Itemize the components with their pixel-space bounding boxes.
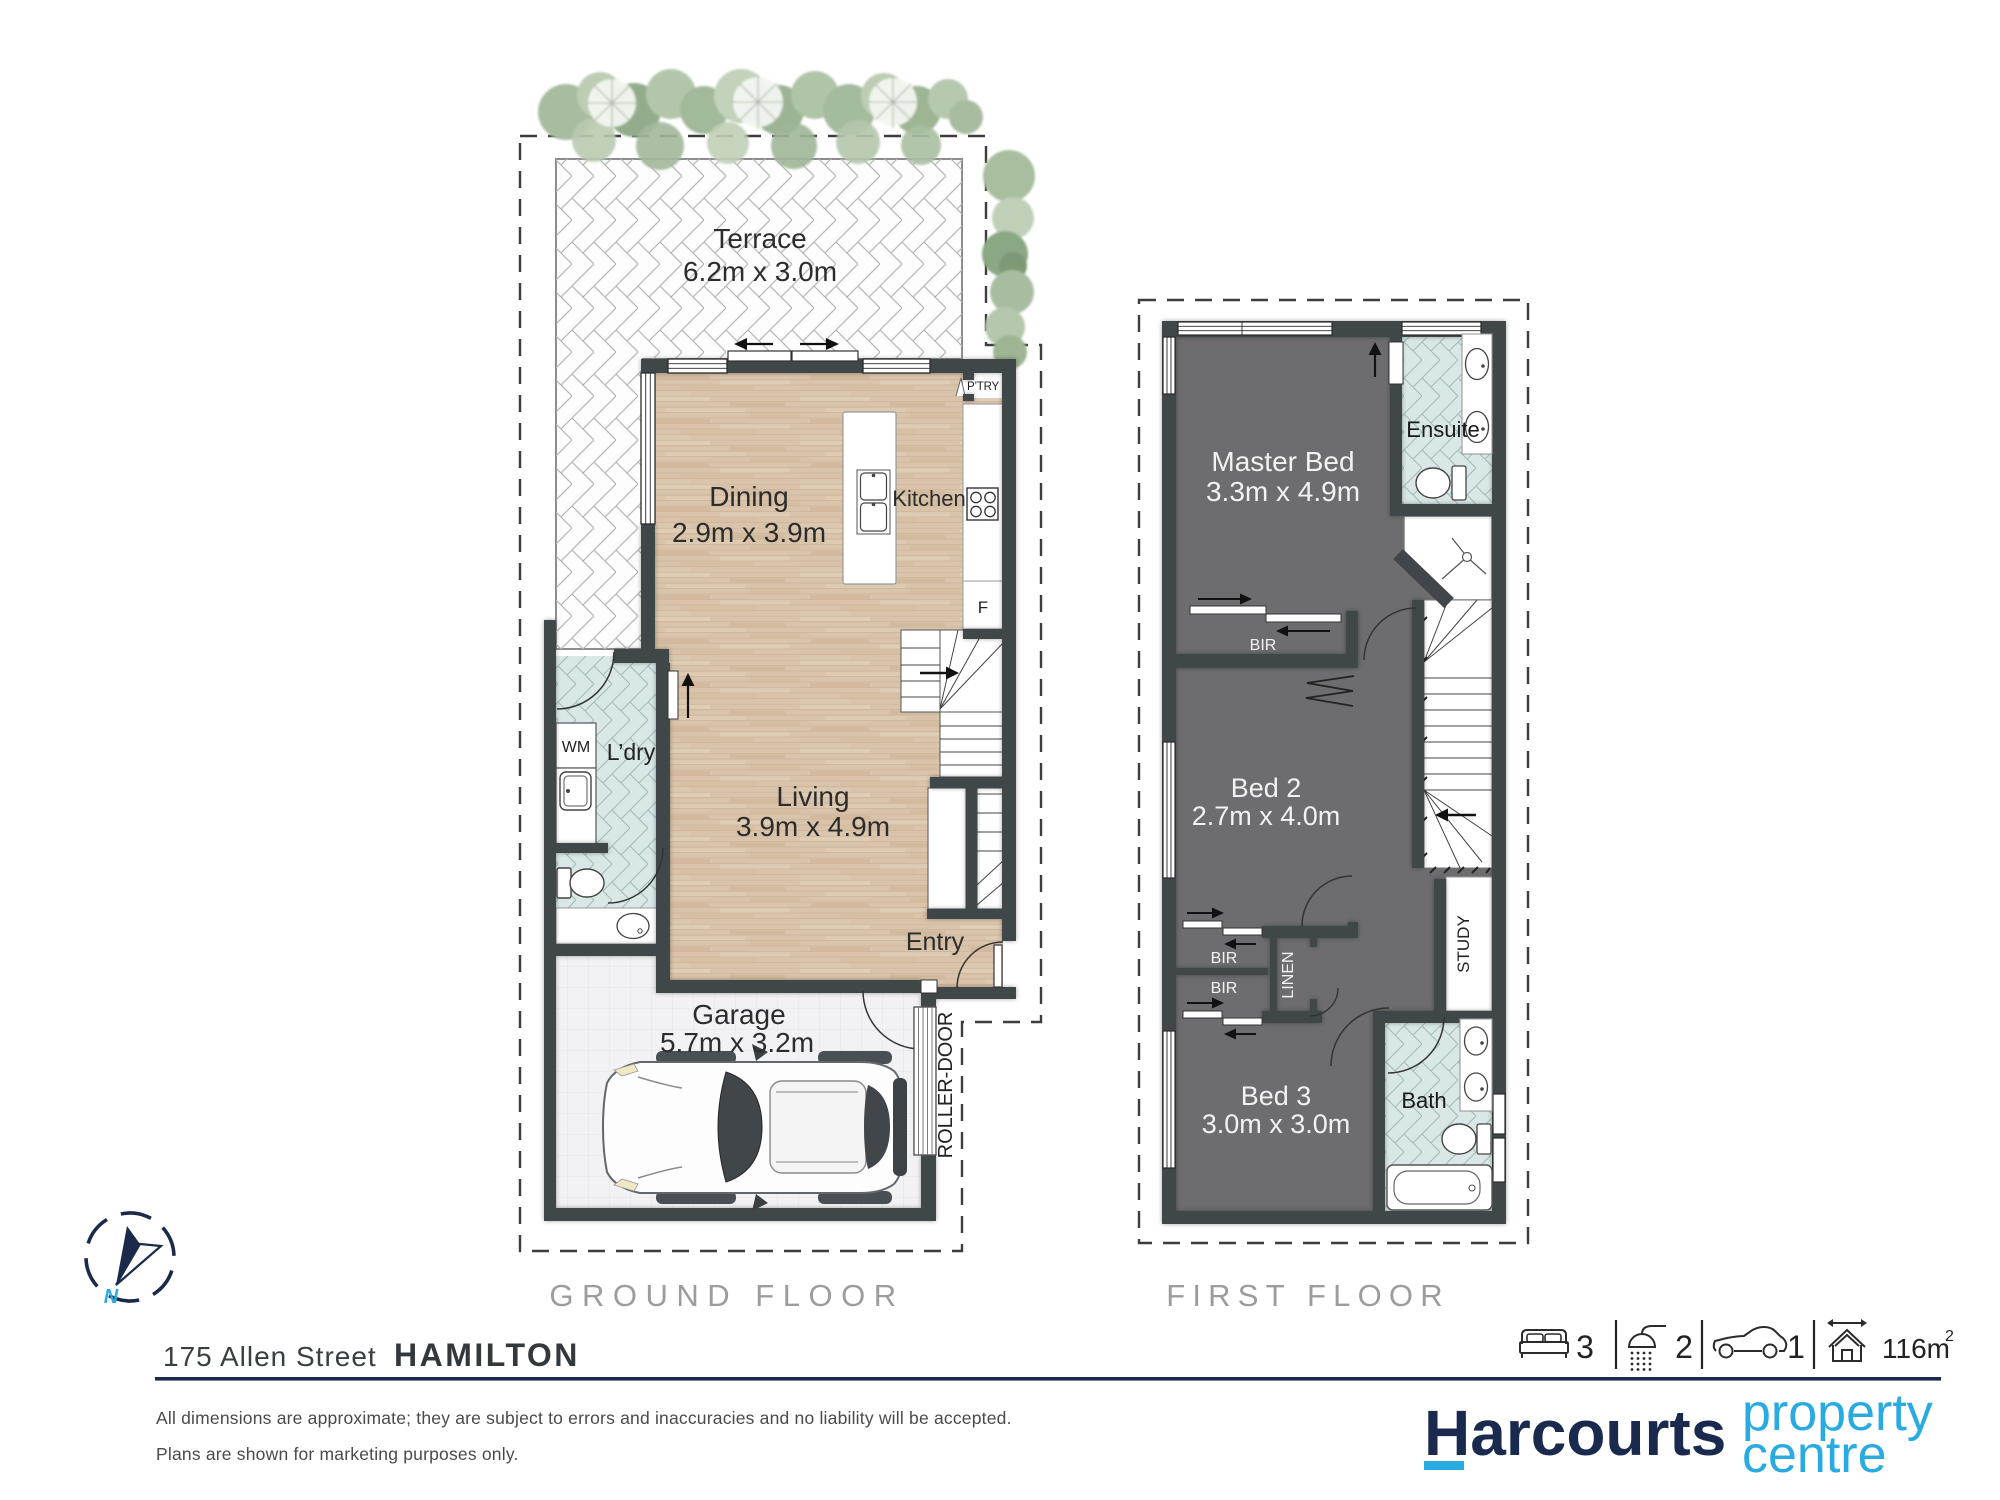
svg-text:1: 1 bbox=[1787, 1329, 1805, 1365]
svg-text:F: F bbox=[978, 598, 988, 617]
svg-text:6.2m x 3.0m: 6.2m x 3.0m bbox=[683, 256, 837, 287]
svg-text:BIR: BIR bbox=[1211, 980, 1238, 997]
svg-text:175 Allen Street: 175 Allen Street bbox=[163, 1341, 377, 1372]
svg-text:P’TRY: P’TRY bbox=[967, 381, 1000, 393]
svg-text:HAMILTON: HAMILTON bbox=[394, 1337, 580, 1373]
svg-text:5.7m x 3.2m: 5.7m x 3.2m bbox=[660, 1027, 814, 1058]
svg-text:Plans are shown for marketing: Plans are shown for marketing purposes o… bbox=[156, 1444, 519, 1464]
svg-text:Kitchen: Kitchen bbox=[892, 486, 965, 511]
svg-text:3.0m x 3.0m: 3.0m x 3.0m bbox=[1202, 1109, 1351, 1139]
svg-text:BIR: BIR bbox=[1250, 637, 1277, 654]
svg-text:2.7m x 4.0m: 2.7m x 4.0m bbox=[1192, 801, 1341, 831]
svg-text:3.9m x 4.9m: 3.9m x 4.9m bbox=[736, 811, 890, 842]
svg-text:Master Bed: Master Bed bbox=[1211, 446, 1354, 477]
svg-text:Bed 3: Bed 3 bbox=[1241, 1081, 1312, 1111]
svg-text:Garage: Garage bbox=[692, 999, 785, 1030]
svg-text:Bath: Bath bbox=[1401, 1088, 1446, 1113]
svg-text:STUDY: STUDY bbox=[1454, 915, 1473, 973]
svg-text:N: N bbox=[104, 1286, 119, 1308]
svg-text:2: 2 bbox=[1675, 1329, 1693, 1365]
svg-text:WM: WM bbox=[562, 739, 590, 756]
svg-text:BIR: BIR bbox=[1211, 950, 1238, 967]
svg-text:centre: centre bbox=[1742, 1426, 1887, 1484]
svg-text:2.9m x 3.9m: 2.9m x 3.9m bbox=[672, 517, 826, 548]
svg-text:Dining: Dining bbox=[709, 481, 788, 512]
svg-text:3.3m x 4.9m: 3.3m x 4.9m bbox=[1206, 476, 1360, 507]
svg-text:LINEN: LINEN bbox=[1280, 951, 1297, 998]
svg-text:ROLLER-DOOR: ROLLER-DOOR bbox=[935, 1012, 957, 1159]
svg-text:116m: 116m bbox=[1882, 1333, 1950, 1364]
svg-text:Bed 2: Bed 2 bbox=[1231, 773, 1302, 803]
svg-text:Harcourts: Harcourts bbox=[1424, 1397, 1726, 1469]
svg-text:Terrace: Terrace bbox=[713, 223, 806, 254]
svg-text:3: 3 bbox=[1576, 1329, 1594, 1365]
svg-text:GROUND FLOOR: GROUND FLOOR bbox=[549, 1278, 904, 1313]
svg-text:FIRST FLOOR: FIRST FLOOR bbox=[1166, 1278, 1450, 1313]
svg-text:L’dry: L’dry bbox=[607, 739, 656, 765]
svg-text:2: 2 bbox=[1945, 1328, 1954, 1345]
svg-text:Ensuite: Ensuite bbox=[1406, 417, 1479, 442]
svg-text:Living: Living bbox=[776, 781, 849, 812]
svg-text:Entry: Entry bbox=[906, 928, 965, 956]
svg-text:All dimensions are approximate: All dimensions are approximate; they are… bbox=[156, 1408, 1012, 1428]
